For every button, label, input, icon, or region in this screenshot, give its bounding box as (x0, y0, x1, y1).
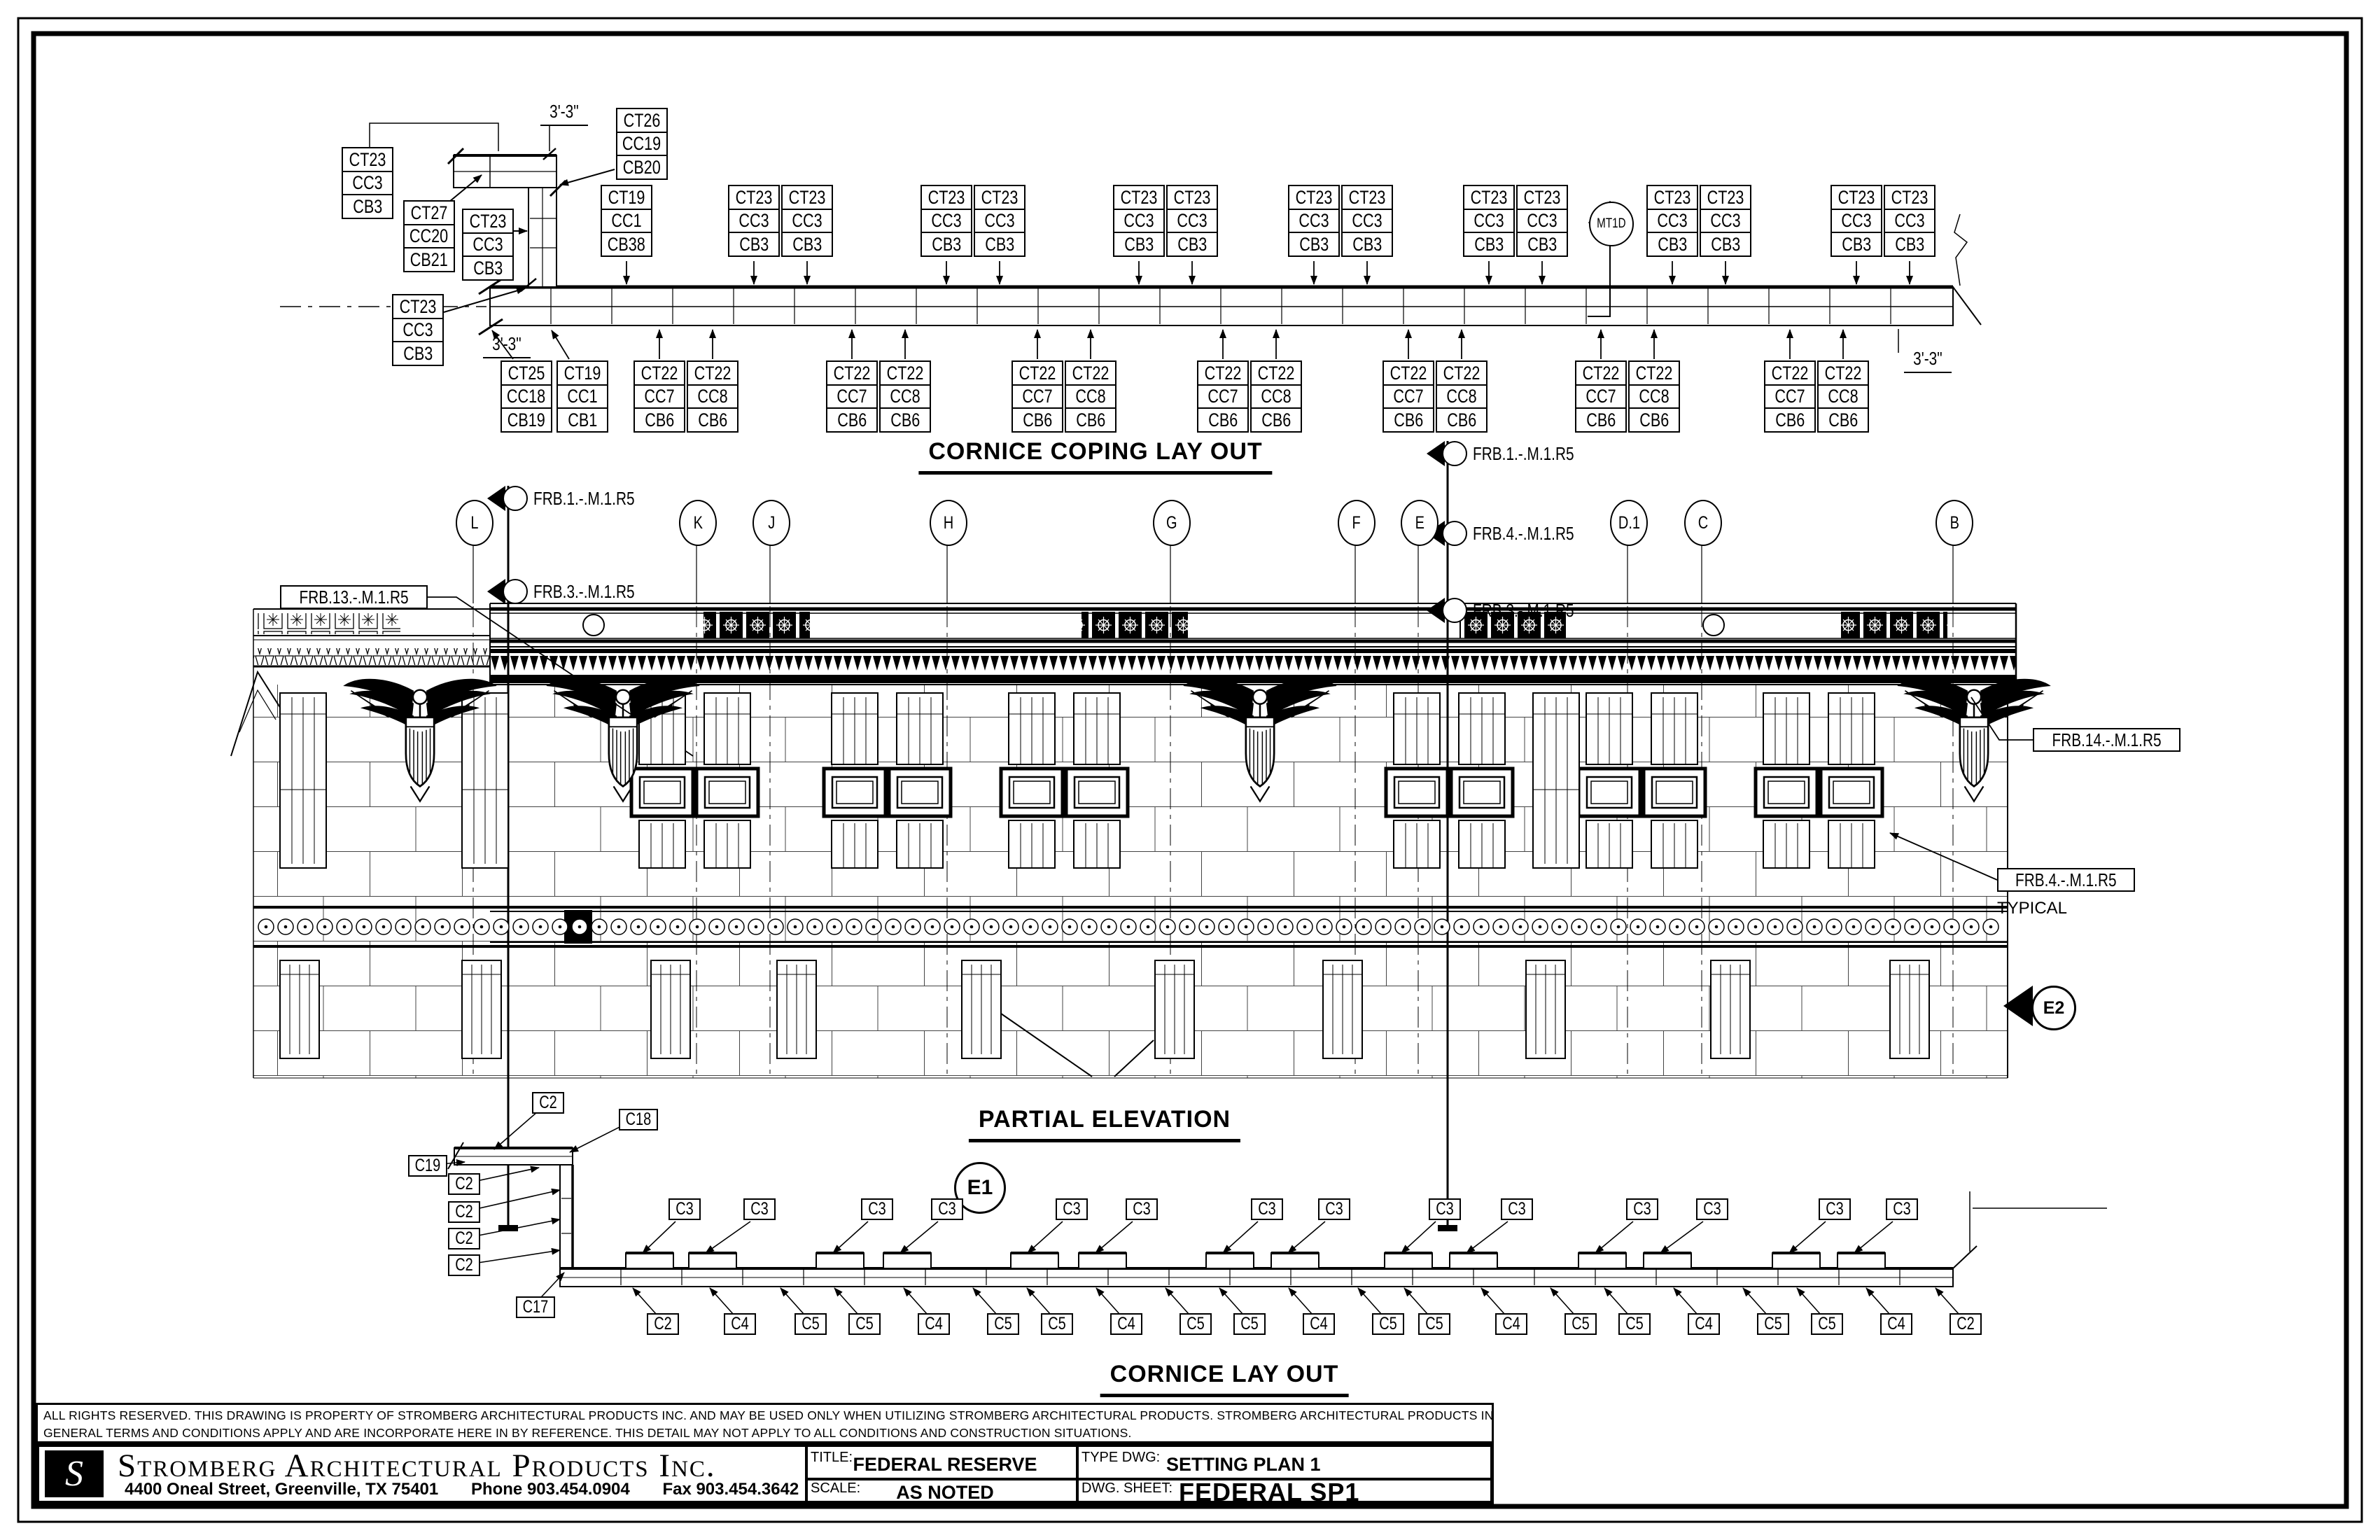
grid-bubble-D.1: D.1 (1610, 500, 1648, 546)
coping-top-code-stack: CT23CC3CB3 (1884, 185, 1935, 257)
code-box: CC18 (500, 384, 552, 409)
type-dwg-value: SETTING PLAN 1 (1166, 1454, 1321, 1476)
code-box: CB3 (920, 232, 972, 257)
detail-marker-mt1d: MT1D (1588, 200, 1632, 245)
coping-bottom-code-stack: CT22CC8CB6 (1817, 360, 1869, 433)
cornice-part-label-c3-text: C3 (868, 1199, 886, 1219)
dimension-2-text: 3'-3" (492, 333, 521, 355)
detail-marker-e1-label: E1 (967, 1176, 993, 1200)
code-box: CT23 (1884, 185, 1935, 210)
dimension-2: 3'-3" (483, 333, 531, 358)
coping-bottom-code-stack: CT22CC7CB6 (1197, 360, 1249, 433)
coping-bottom-code-stack: CT22CC7CB6 (1764, 360, 1816, 433)
code-box: CC3 (1288, 209, 1340, 234)
code-box: CB3 (1341, 232, 1393, 257)
grid-bubble-E: E (1401, 500, 1438, 546)
coping-bottom-code-stack: CT22CC8CB6 (1628, 360, 1680, 433)
code-box: CT22 (826, 360, 878, 386)
code-box: CB6 (1628, 407, 1680, 433)
code-box: CB6 (1382, 407, 1434, 433)
scale-value: AS NOTED (826, 1482, 1064, 1504)
coping-top-code-stack: CT23CC3CB3 (920, 185, 972, 257)
coping-corner-code-stack: CT26CC19CB20 (616, 108, 668, 180)
grid-bubble-K: K (679, 500, 717, 546)
title-value: FEDERAL RESERVE (826, 1454, 1064, 1476)
code-box: CB6 (1817, 407, 1869, 433)
code-box: CT22 (1436, 360, 1487, 386)
code-box: CC1 (556, 384, 608, 409)
cornice-part-label-c3-text: C3 (1063, 1199, 1081, 1219)
code-box: CT22 (1382, 360, 1434, 386)
cornice-part-label-c5: C5 (1179, 1313, 1212, 1335)
frb-flag-label: FRB.1.-.M.1.R5 (1460, 442, 1587, 465)
cornice-part-label-c3-text: C3 (938, 1199, 956, 1219)
cornice-part-label-c3: C3 (1251, 1198, 1283, 1220)
code-box: CT23 (392, 294, 444, 319)
code-box: CT22 (1197, 360, 1249, 386)
code-box: CC7 (1197, 384, 1249, 409)
cornice-part-label-c2: C2 (1949, 1313, 1982, 1335)
coping-top-code-stack: CT23CC3CB3 (1830, 185, 1882, 257)
code-box: CT22 (1628, 360, 1680, 386)
type-dwg-label: TYPE DWG: (1081, 1450, 1160, 1466)
cornice-part-label-c2: C2 (448, 1201, 480, 1223)
coping-bottom-code-stack: CT25CC18CB19 (500, 360, 552, 433)
cornice-part-label-c5-text: C5 (994, 1314, 1012, 1334)
grid-bubble-C-text: C (1698, 513, 1708, 533)
frb13-text: FRB.13.-.M.1.R5 (300, 587, 409, 608)
code-box: CT23 (1700, 185, 1751, 210)
code-box: CT19 (556, 360, 608, 386)
code-box: CB3 (342, 194, 393, 219)
cornice-part-label-c2-text: C2 (455, 1228, 473, 1249)
cornice-part-label-c2: C2 (448, 1173, 480, 1195)
cornice-part-label-c4: C4 (1688, 1313, 1720, 1335)
cornice-part-label-c4: C4 (1880, 1313, 1912, 1335)
elevation-section-title: PARTIAL ELEVATION (969, 1106, 1240, 1142)
cornice-part-label-c18: C18 (619, 1109, 658, 1130)
grid-bubble-E-text: E (1415, 513, 1424, 533)
coping-top-code-stack: CT23CC3CB3 (974, 185, 1025, 257)
cornice-part-label-c2-text: C2 (1956, 1314, 1975, 1334)
dimension-1-text: 3'-3" (549, 101, 578, 122)
legal-disclaimer: ALL RIGHTS RESERVED. THIS DRAWING IS PRO… (36, 1403, 1494, 1443)
cornice-part-label-c5-text: C5 (1818, 1314, 1836, 1334)
cornice-part-label-c4-text: C4 (731, 1314, 749, 1334)
cornice-part-label-c3-text: C3 (1133, 1199, 1151, 1219)
grid-bubble-F-text: F (1352, 513, 1361, 533)
code-box: CC3 (1113, 209, 1165, 234)
cornice-part-label-c5-text: C5 (1186, 1314, 1205, 1334)
cornice-part-label-c4-text: C4 (1310, 1314, 1328, 1334)
dwg-sheet-label: DWG. SHEET: (1081, 1480, 1172, 1497)
code-box: CT27 (403, 200, 455, 225)
frb14-reference-label: FRB.14.-.M.1.R5 (2033, 728, 2180, 752)
cornice-part-label-c4: C4 (1303, 1313, 1335, 1335)
coping-corner-code-stack: CT23CC3CB3 (392, 294, 444, 366)
code-box: CC3 (392, 318, 444, 343)
code-box: CC8 (879, 384, 931, 409)
code-box: CT23 (462, 209, 514, 234)
cornice-part-label-c5: C5 (1811, 1313, 1843, 1335)
title-block: S Stromberg Architectural Products Inc. … (36, 1443, 1494, 1504)
code-box: CC8 (1436, 384, 1487, 409)
code-box: CB3 (728, 232, 780, 257)
cornice-part-label-c17: C17 (516, 1296, 555, 1318)
titleblock-divider (805, 1447, 808, 1501)
code-box: CB3 (1113, 232, 1165, 257)
code-box: CT22 (1065, 360, 1116, 386)
coping-bottom-code-stack: CT22CC7CB6 (826, 360, 878, 433)
coping-top-code-stack: CT19CC1CB38 (601, 185, 652, 257)
coping-bottom-code-stack: CT22CC7CB6 (633, 360, 685, 433)
code-box: CC19 (616, 132, 668, 157)
code-box: CT22 (1575, 360, 1627, 386)
code-box: CB6 (1436, 407, 1487, 433)
cornice-part-label-c17-text: C17 (523, 1297, 549, 1317)
code-box: CB3 (1166, 232, 1218, 257)
code-box: CB3 (1288, 232, 1340, 257)
cornice-part-label-c2: C2 (448, 1254, 480, 1276)
coping-top-code-stack: CT23CC3CB3 (1166, 185, 1218, 257)
grid-bubble-J-text: J (768, 513, 775, 533)
coping-bottom-code-stack: CT22CC8CB6 (1065, 360, 1116, 433)
frb-flag-label: FRB.4.-.M.1.R5 (1460, 521, 1587, 545)
grid-bubble-D.1-text: D.1 (1618, 513, 1639, 533)
code-box: CT26 (616, 108, 668, 133)
code-box: CT25 (500, 360, 552, 386)
detail-marker-e2-label: E2 (2043, 998, 2065, 1018)
detail-marker-mt1d-label: MT1D (1597, 216, 1625, 232)
cornice-part-label-c5: C5 (848, 1313, 881, 1335)
cornice-part-label-c3-text: C3 (1258, 1199, 1276, 1219)
code-box: CB21 (403, 247, 455, 272)
grid-bubble-H-text: H (944, 513, 953, 533)
code-box: CT19 (601, 185, 652, 210)
drawing-sheet: CORNICE COPING LAY OUT PARTIAL ELEVATION… (0, 0, 2380, 1540)
coping-top-code-stack: CT23CC3CB3 (1646, 185, 1698, 257)
cornice-part-label-c5: C5 (1618, 1313, 1651, 1335)
coping-top-code-stack: CT23CC3CB3 (1463, 185, 1515, 257)
code-box: CB19 (500, 407, 552, 433)
cornice-part-label-c5: C5 (1233, 1313, 1266, 1335)
code-box: CC3 (974, 209, 1025, 234)
cornice-part-label-c5: C5 (1757, 1313, 1789, 1335)
code-box: CB3 (781, 232, 833, 257)
code-box: CB6 (879, 407, 931, 433)
dimension-3: 3'-3" (1904, 348, 1952, 373)
code-box: CC8 (1250, 384, 1302, 409)
code-box: CC7 (633, 384, 685, 409)
company-logo: S (45, 1450, 104, 1497)
code-box: CB6 (1197, 407, 1249, 433)
coping-top-code-stack: CT23CC3CB3 (1288, 185, 1340, 257)
frb-flag-label-text: FRB.1.-.M.1.R5 (533, 488, 634, 510)
code-box: CC20 (403, 224, 455, 249)
cornice-part-label-c2-text: C2 (654, 1314, 672, 1334)
coping-bottom-code-stack: CT22CC7CB6 (1011, 360, 1063, 433)
code-box: CT23 (1341, 185, 1393, 210)
code-box: CC1 (601, 209, 652, 234)
coping-top-code-stack: CT23CC3CB3 (1341, 185, 1393, 257)
cornice-part-label-c3-text: C3 (1325, 1199, 1343, 1219)
cornice-part-label-c2: C2 (448, 1228, 480, 1249)
frb-flag-label: FRB.3.-.M.1.R5 (1460, 598, 1587, 622)
code-box: CC3 (728, 209, 780, 234)
cornice-part-label-c3-text: C3 (1826, 1199, 1844, 1219)
grid-bubble-L-text: L (470, 513, 478, 533)
cornice-part-label-c5: C5 (1372, 1313, 1404, 1335)
cornice-part-label-c4: C4 (1495, 1313, 1527, 1335)
code-box: CB1 (556, 407, 608, 433)
frb4-reference-label: FRB.4.-.M.1.R5 (1997, 868, 2135, 892)
coping-bottom-code-stack: CT22CC8CB6 (687, 360, 738, 433)
coping-top-code-stack: CT23CC3CB3 (1113, 185, 1165, 257)
cornice-part-label-c4-text: C4 (1887, 1314, 1905, 1334)
cornice-part-label-c3-text: C3 (1893, 1199, 1911, 1219)
code-box: CB6 (826, 407, 878, 433)
cornice-part-label-c5-text: C5 (855, 1314, 874, 1334)
cornice-part-label-c3: C3 (861, 1198, 893, 1220)
code-box: CB3 (1516, 232, 1568, 257)
grid-bubble-J: J (752, 500, 790, 546)
company-fax: Fax 903.454.3642 (662, 1480, 799, 1499)
frb-flag-label-text: FRB.1.-.M.1.R5 (1473, 443, 1574, 465)
code-box: CC7 (1011, 384, 1063, 409)
code-box: CB3 (462, 255, 514, 281)
cornice-part-label-c3: C3 (1126, 1198, 1158, 1220)
code-box: CC8 (1817, 384, 1869, 409)
cornice-part-label-c5: C5 (1564, 1313, 1597, 1335)
code-box: CC3 (781, 209, 833, 234)
cornice-part-label-c5: C5 (987, 1313, 1019, 1335)
cornice-part-label-c19-text: C19 (415, 1156, 441, 1176)
cornice-part-label-c5-text: C5 (1571, 1314, 1590, 1334)
cornice-part-label-c3-text: C3 (750, 1199, 769, 1219)
dimension-3-text: 3'-3" (1913, 348, 1942, 370)
code-box: CT23 (1830, 185, 1882, 210)
coping-bottom-code-stack: CT22CC7CB6 (1575, 360, 1627, 433)
cornice-part-label-c3: C3 (1886, 1198, 1918, 1220)
code-box: CC3 (1700, 209, 1751, 234)
cornice-part-label-c2-text: C2 (455, 1174, 473, 1194)
cornice-part-label-c3: C3 (743, 1198, 776, 1220)
cornice-part-label-c3: C3 (1429, 1198, 1461, 1220)
code-box: CT23 (1288, 185, 1340, 210)
cornice-part-label-c18-text: C18 (626, 1109, 652, 1130)
cornice-part-label-c3: C3 (668, 1198, 701, 1220)
code-box: CC8 (1628, 384, 1680, 409)
cornice-part-label-c4-text: C4 (1695, 1314, 1713, 1334)
code-box: CT22 (687, 360, 738, 386)
code-box: CT23 (920, 185, 972, 210)
cornice-part-label-c3-text: C3 (675, 1199, 694, 1219)
cornice-part-label-c5-text: C5 (1764, 1314, 1782, 1334)
cornice-part-label-c3: C3 (1626, 1198, 1658, 1220)
coping-top-code-stack: CT23CC3CB3 (728, 185, 780, 257)
cornice-part-label-c3-text: C3 (1633, 1199, 1651, 1219)
code-box: CT23 (1113, 185, 1165, 210)
cornice-part-label-c5-text: C5 (1425, 1314, 1443, 1334)
cornice-part-label-c19: C19 (408, 1155, 447, 1177)
code-box: CT22 (1764, 360, 1816, 386)
code-box: CT23 (728, 185, 780, 210)
cornice-part-label-c4: C4 (918, 1313, 950, 1335)
grid-bubble-K-text: K (693, 513, 702, 533)
code-box: CB3 (1830, 232, 1882, 257)
frb-flag-label: FRB.1.-.M.1.R5 (521, 486, 647, 510)
frb4-text: FRB.4.-.M.1.R5 (2015, 869, 2116, 891)
dimension-1: 3'-3" (540, 101, 588, 126)
code-box: CT23 (1646, 185, 1698, 210)
cornice-part-label-c5: C5 (794, 1313, 827, 1335)
titleblock-divider (1076, 1447, 1079, 1501)
code-box: CT23 (1516, 185, 1568, 210)
cornice-part-label-c4: C4 (1110, 1313, 1142, 1335)
company-name: Stromberg Architectural Products Inc. (118, 1447, 716, 1485)
cornice-part-label-c4-text: C4 (925, 1314, 943, 1334)
cornice-part-label-c3-text: C3 (1703, 1199, 1721, 1219)
coping-section-title: CORNICE COPING LAY OUT (918, 438, 1272, 475)
label-layer: CORNICE COPING LAY OUT PARTIAL ELEVATION… (0, 0, 2380, 1540)
frb13-reference-label: FRB.13.-.M.1.R5 (280, 585, 428, 609)
section-arrow-icon (2003, 986, 2033, 1026)
cornice-part-label-c3: C3 (1696, 1198, 1728, 1220)
coping-top-code-stack: CT23CC3CB3 (1516, 185, 1568, 257)
frb14-text: FRB.14.-.M.1.R5 (2052, 729, 2162, 751)
code-box: CT22 (1250, 360, 1302, 386)
code-box: CB3 (1884, 232, 1935, 257)
code-box: CC7 (1382, 384, 1434, 409)
grid-bubble-G: G (1153, 500, 1191, 546)
code-box: CT23 (781, 185, 833, 210)
detail-marker-mt1d-circle: MT1D (1589, 202, 1634, 246)
cornice-part-label-c2-text: C2 (455, 1202, 473, 1222)
grid-bubble-H: H (930, 500, 967, 546)
code-box: CB3 (1646, 232, 1698, 257)
code-box: CC3 (342, 171, 393, 196)
coping-corner-code-stack: CT27CC20CB21 (403, 200, 455, 272)
code-box: CC3 (1166, 209, 1218, 234)
code-box: CT22 (1817, 360, 1869, 386)
company-address-line: 4400 Oneal Street, Greenville, TX 75401 … (125, 1480, 827, 1499)
code-box: CT22 (633, 360, 685, 386)
cornice-part-label-c3-text: C3 (1436, 1199, 1454, 1219)
code-box: CT23 (974, 185, 1025, 210)
typical-note: TYPICAL (1997, 899, 2067, 918)
cornice-part-label-c5: C5 (1041, 1313, 1073, 1335)
cornice-part-label-c3: C3 (1318, 1198, 1350, 1220)
grid-bubble-L: L (456, 500, 493, 546)
code-box: CB6 (633, 407, 685, 433)
cornice-part-label-c5-text: C5 (1240, 1314, 1259, 1334)
cornice-part-label-c3: C3 (1819, 1198, 1851, 1220)
dwg-sheet-value: FEDERAL SP1 (1179, 1478, 1359, 1507)
cornice-part-label-c5-text: C5 (1048, 1314, 1066, 1334)
code-box: CB3 (974, 232, 1025, 257)
coping-top-code-stack: CT23CC3CB3 (781, 185, 833, 257)
cornice-part-label-c2-text: C2 (539, 1093, 557, 1113)
code-box: CC3 (1341, 209, 1393, 234)
coping-corner-code-stack: CT23CC3CB3 (462, 209, 514, 281)
detail-marker-e2: E2 (2031, 986, 2076, 1030)
code-box: CT23 (1166, 185, 1218, 210)
coping-top-code-stack: CT23CC3CB3 (1700, 185, 1751, 257)
coping-bottom-code-stack: CT22CC8CB6 (879, 360, 931, 433)
code-box: CC3 (462, 232, 514, 258)
cornice-part-label-c2: C2 (647, 1313, 679, 1335)
cornice-part-label-c4-text: C4 (1502, 1314, 1520, 1334)
code-box: CC3 (1463, 209, 1515, 234)
coping-bottom-code-stack: CT22CC8CB6 (1250, 360, 1302, 433)
frb-flag-label-text: FRB.3.-.M.1.R5 (533, 581, 634, 603)
coping-corner-code-stack: CT23CC3CB3 (342, 147, 393, 219)
company-phone: Phone 903.454.0904 (471, 1480, 630, 1499)
code-box: CC3 (1646, 209, 1698, 234)
code-box: CB3 (1700, 232, 1751, 257)
code-box: CT22 (879, 360, 931, 386)
coping-bottom-code-stack: CT22CC8CB6 (1436, 360, 1487, 433)
code-box: CT22 (1011, 360, 1063, 386)
code-box: CB6 (1250, 407, 1302, 433)
cornice-part-label-c5-text: C5 (801, 1314, 820, 1334)
legal-line-1: ALL RIGHTS RESERVED. THIS DRAWING IS PRO… (43, 1407, 1486, 1424)
code-box: CB3 (392, 341, 444, 366)
code-box: CB20 (616, 155, 668, 180)
cornice-part-label-c5-text: C5 (1379, 1314, 1397, 1334)
code-box: CC3 (1884, 209, 1935, 234)
code-box: CB6 (1011, 407, 1063, 433)
company-logo-glyph: S (65, 1453, 83, 1494)
code-box: CB6 (1764, 407, 1816, 433)
grid-bubble-B: B (1935, 500, 1973, 546)
code-box: CC8 (1065, 384, 1116, 409)
cornice-part-label-c2: C2 (532, 1092, 564, 1114)
cornice-part-label-c4-text: C4 (1117, 1314, 1135, 1334)
code-box: CC3 (920, 209, 972, 234)
code-box: CB6 (1575, 407, 1627, 433)
cornice-section-title: CORNICE LAY OUT (1100, 1361, 1349, 1397)
cornice-part-label-c5: C5 (1418, 1313, 1450, 1335)
code-box: CB6 (1065, 407, 1116, 433)
cornice-part-label-c2-text: C2 (455, 1255, 473, 1275)
code-box: CC8 (687, 384, 738, 409)
code-box: CC3 (1830, 209, 1882, 234)
cornice-part-label-c3: C3 (931, 1198, 963, 1220)
code-box: CT23 (1463, 185, 1515, 210)
grid-bubble-B-text: B (1949, 513, 1959, 533)
cornice-part-label-c3-text: C3 (1508, 1199, 1526, 1219)
code-box: CB6 (687, 407, 738, 433)
code-box: CT23 (342, 147, 393, 172)
frb-flag-label: FRB.3.-.M.1.R5 (521, 580, 647, 603)
code-box: CC7 (1575, 384, 1627, 409)
cornice-part-label-c4: C4 (724, 1313, 756, 1335)
legal-line-2: GENERAL TERMS AND CONDITIONS APPLY AND A… (43, 1424, 1486, 1442)
code-box: CC3 (1516, 209, 1568, 234)
company-address: 4400 Oneal Street, Greenville, TX 75401 (125, 1480, 438, 1499)
grid-bubble-G-text: G (1166, 513, 1177, 533)
grid-bubble-C: C (1684, 500, 1722, 546)
code-box: CB38 (601, 232, 652, 257)
frb-flag-label-text: FRB.4.-.M.1.R5 (1473, 523, 1574, 545)
coping-bottom-code-stack: CT19CC1CB1 (556, 360, 608, 433)
grid-bubble-F: F (1338, 500, 1375, 546)
coping-bottom-code-stack: CT22CC7CB6 (1382, 360, 1434, 433)
code-box: CC7 (1764, 384, 1816, 409)
cornice-part-label-c5-text: C5 (1625, 1314, 1644, 1334)
code-box: CB3 (1463, 232, 1515, 257)
